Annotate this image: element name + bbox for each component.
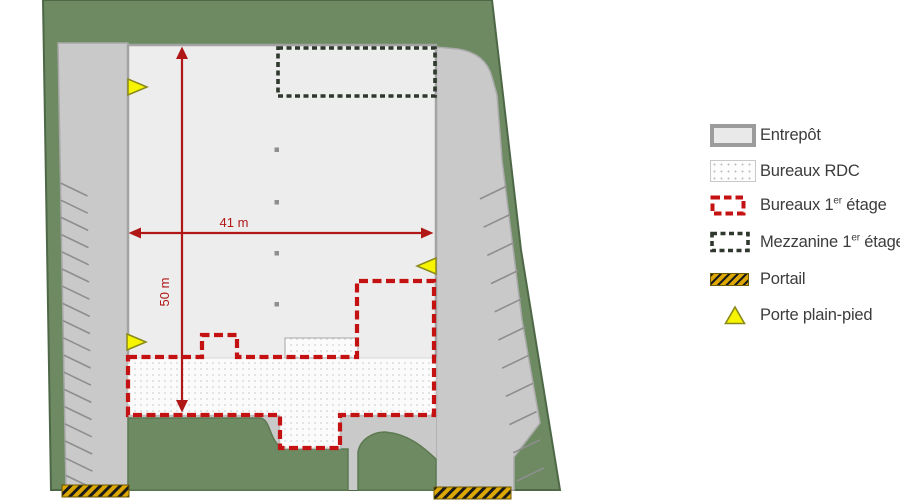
legend-item-bureaux-rdc: Bureaux RDC: [710, 158, 860, 184]
dimension-width-label: 41 m: [220, 215, 249, 230]
column-dot: [275, 302, 280, 307]
legend-label: Bureaux RDC: [760, 162, 860, 181]
porte-plain-pied-swatch-icon: [710, 305, 760, 326]
legend-item-mezzanine-1er: Mezzanine 1er étage: [710, 229, 900, 255]
portail-left: [62, 485, 129, 497]
entrepot-swatch-icon: [710, 124, 760, 147]
legend-item-porte-plain-pied: Porte plain-pied: [710, 302, 872, 328]
left-parking-strip: [58, 43, 128, 490]
legend-item-bureaux-1er: Bureaux 1er étage: [710, 192, 887, 218]
column-dot: [275, 200, 280, 205]
legend: Entrepôt Bureaux RDC Bureaux 1er étage M…: [710, 0, 900, 500]
legend-label: Porte plain-pied: [760, 306, 872, 325]
legend-item-entrepot: Entrepôt: [710, 122, 821, 148]
column-dot: [275, 251, 280, 256]
site-plan-screenshot: 41 m 50 m Entrepôt Bureaux RDC: [0, 0, 900, 500]
portail-swatch-icon: [710, 273, 760, 286]
column-dot: [275, 148, 280, 153]
bureaux-rdc-swatch-icon: [710, 160, 760, 182]
bureaux-1er-swatch-icon: [710, 195, 760, 216]
mezzanine-swatch-icon: [710, 231, 760, 253]
legend-label: Portail: [760, 270, 805, 289]
dimension-height-label: 50 m: [157, 278, 172, 307]
portail-right: [434, 487, 511, 499]
legend-label: Entrepôt: [760, 126, 821, 145]
legend-item-portail: Portail: [710, 266, 805, 292]
legend-label: Mezzanine 1er étage: [760, 233, 900, 252]
legend-label: Bureaux 1er étage: [760, 196, 887, 215]
